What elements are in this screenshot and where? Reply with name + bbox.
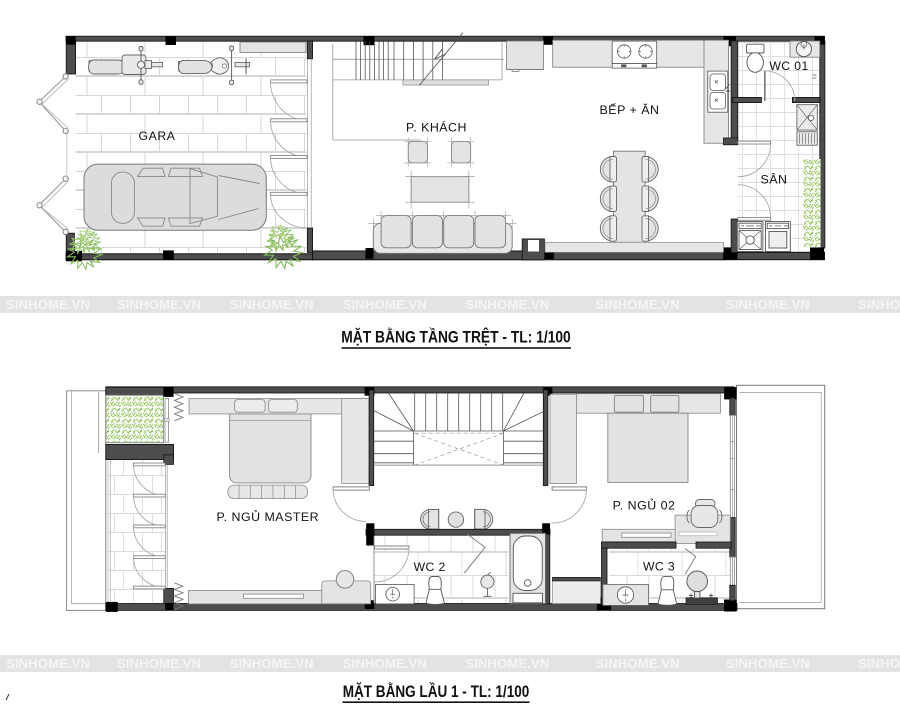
svg-text:SINHOME.VN: SINHOME.VN — [343, 297, 427, 312]
svg-text:SINHOME.VN: SINHOME.VN — [6, 297, 90, 312]
svg-text:P. NGỦ 02: P. NGỦ 02 — [613, 498, 676, 513]
svg-text:SINHOME.VN: SINHOME.VN — [465, 297, 549, 312]
svg-text:SINHOME.VN: SINHOME.VN — [230, 297, 314, 312]
svg-text:GARA: GARA — [139, 129, 176, 143]
svg-text:WC 2: WC 2 — [414, 560, 446, 574]
svg-text:SINHOME.VN: SINHOME.VN — [117, 297, 201, 312]
svg-text:SINHOME.VN: SINHOME.VN — [117, 656, 201, 671]
svg-text:SINHOME.VN: SINHOME.VN — [858, 297, 900, 312]
svg-text:SINHOME.VN: SINHOME.VN — [596, 656, 680, 671]
svg-text:SINHOME.VN: SINHOME.VN — [230, 656, 314, 671]
svg-text:SINHOME.VN: SINHOME.VN — [343, 656, 427, 671]
svg-text:P. KHÁCH: P. KHÁCH — [406, 119, 467, 134]
svg-text:SINHOME.VN: SINHOME.VN — [465, 656, 549, 671]
svg-text:MẶT BẰNG TẦNG TRỆT - TL: 1/100: MẶT BẰNG TẦNG TRỆT - TL: 1/100 — [341, 328, 571, 347]
svg-text:SINHOME.VN: SINHOME.VN — [596, 297, 680, 312]
svg-text:SINHOME.VN: SINHOME.VN — [726, 656, 810, 671]
svg-text:SÂN: SÂN — [761, 172, 788, 187]
svg-text:SINHOME.VN: SINHOME.VN — [6, 656, 90, 671]
svg-text:BẾP + ĂN: BẾP + ĂN — [600, 102, 660, 117]
svg-text:SINHOME.VN: SINHOME.VN — [726, 297, 810, 312]
svg-text:WC 3: WC 3 — [643, 560, 675, 574]
svg-text:WC 01: WC 01 — [769, 59, 808, 73]
svg-text:P. NGỦ MASTER: P. NGỦ MASTER — [216, 509, 319, 524]
svg-text:SINHOME.VN: SINHOME.VN — [858, 656, 900, 671]
svg-text:MẶT BẰNG LẦU 1 - TL: 1/100: MẶT BẰNG LẦU 1 - TL: 1/100 — [343, 682, 530, 701]
